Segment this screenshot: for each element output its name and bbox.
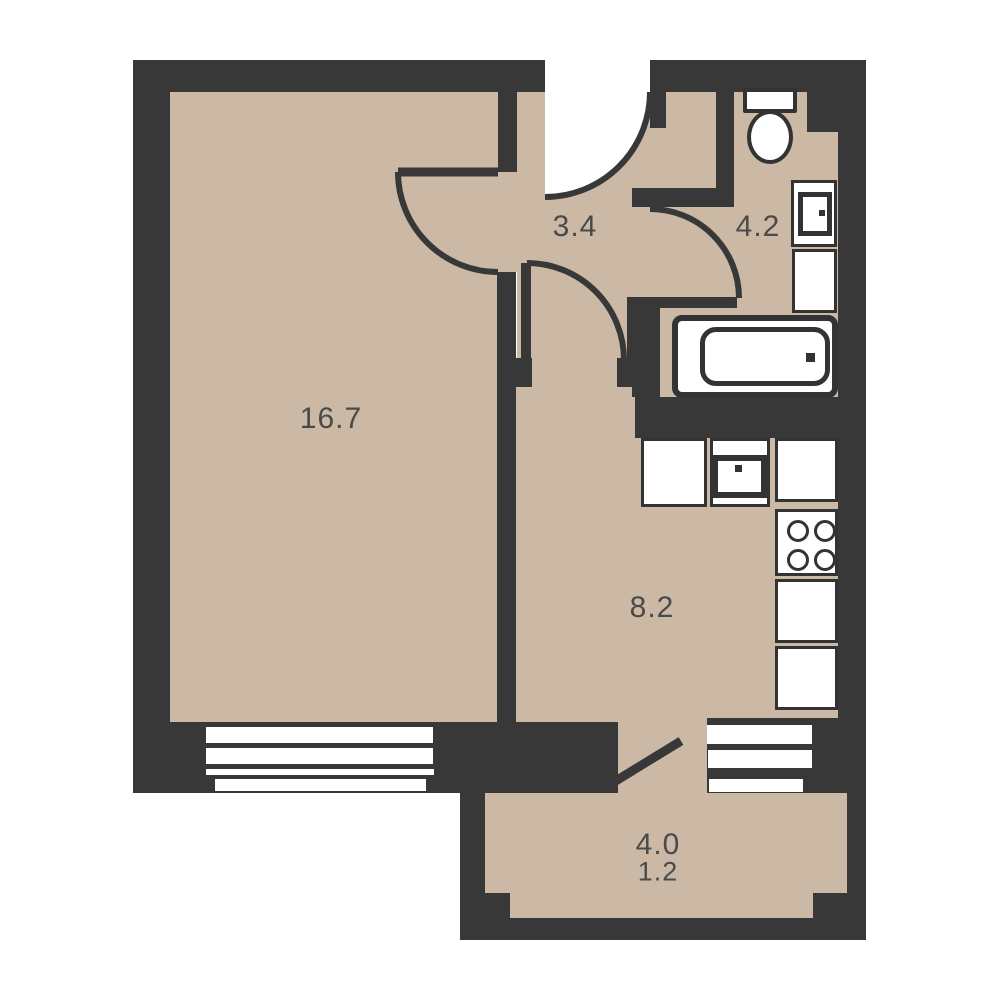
toilet-compartment-wall-v <box>716 92 734 188</box>
hallway-area-label: 3.4 <box>553 210 598 244</box>
kitchen-door-jamb-right <box>617 358 640 387</box>
balcony-bottom-right <box>813 893 847 940</box>
living-window-bar <box>206 748 433 764</box>
bathroom-area-label: 4.2 <box>736 210 781 244</box>
toilet-bowl-icon <box>747 110 793 164</box>
stove-burner-icon <box>814 520 836 542</box>
balcony-bottom-left <box>485 893 510 940</box>
right-wall <box>838 60 866 718</box>
floor-plan: 16.7 3.4 4.2 8.2 4.0 1.2 <box>0 0 1000 1000</box>
washbasin-tap-dot <box>819 210 825 216</box>
kitchen-window-bar <box>708 750 812 768</box>
balcony-right-wall <box>847 793 866 940</box>
bathroom-corner-notch <box>807 88 838 132</box>
kitchen-sink-icon <box>712 455 767 498</box>
bathtub-drain-dot <box>806 353 815 362</box>
kitchen-sink-tap-dot <box>735 465 742 472</box>
left-wall <box>133 60 170 792</box>
balcony-bottom-wall <box>510 918 813 940</box>
living-window-bar <box>215 779 426 791</box>
kitchen-counter-a <box>641 438 707 507</box>
bath-door-bottom-stub <box>632 297 737 308</box>
right-wall-balcony-jamb <box>812 718 866 793</box>
room-right-wall-lower <box>497 272 516 722</box>
stove-burner-icon <box>787 520 809 542</box>
living-window-bar <box>206 769 434 775</box>
washbasin-sink-icon <box>798 192 832 236</box>
bath-bottom-wall <box>635 397 838 438</box>
living-window-bar <box>206 727 433 743</box>
entrance-jamb-stub <box>650 88 666 128</box>
room-door-opening <box>498 172 517 272</box>
room-right-wall-upper <box>498 92 517 172</box>
top-wall-left <box>133 60 545 92</box>
living-room-area-label: 16.7 <box>300 402 362 436</box>
bathroom-cabinet-icon <box>792 249 837 313</box>
kitchen-window-bar <box>709 779 803 792</box>
toilet-compartment-wall-h <box>632 188 734 207</box>
kitchen-counter-d <box>775 579 838 643</box>
stove-burner-icon <box>787 549 809 571</box>
balcony-floor-notch <box>510 893 813 918</box>
balcony-door-gap-floor <box>618 712 707 793</box>
kitchen-window-bar <box>707 725 812 744</box>
kitchen-counter-e <box>775 646 838 710</box>
stove-burner-icon <box>814 549 836 571</box>
balcony-left-wall <box>460 793 485 940</box>
stove-icon <box>775 509 838 576</box>
kitchen-door-jamb-left <box>515 358 532 387</box>
kitchen-area-label: 8.2 <box>630 591 675 625</box>
balcony-reduced-area-label: 1.2 <box>638 857 679 888</box>
entrance-wall-gap <box>545 58 650 92</box>
kitchen-counter-corner <box>775 438 838 502</box>
